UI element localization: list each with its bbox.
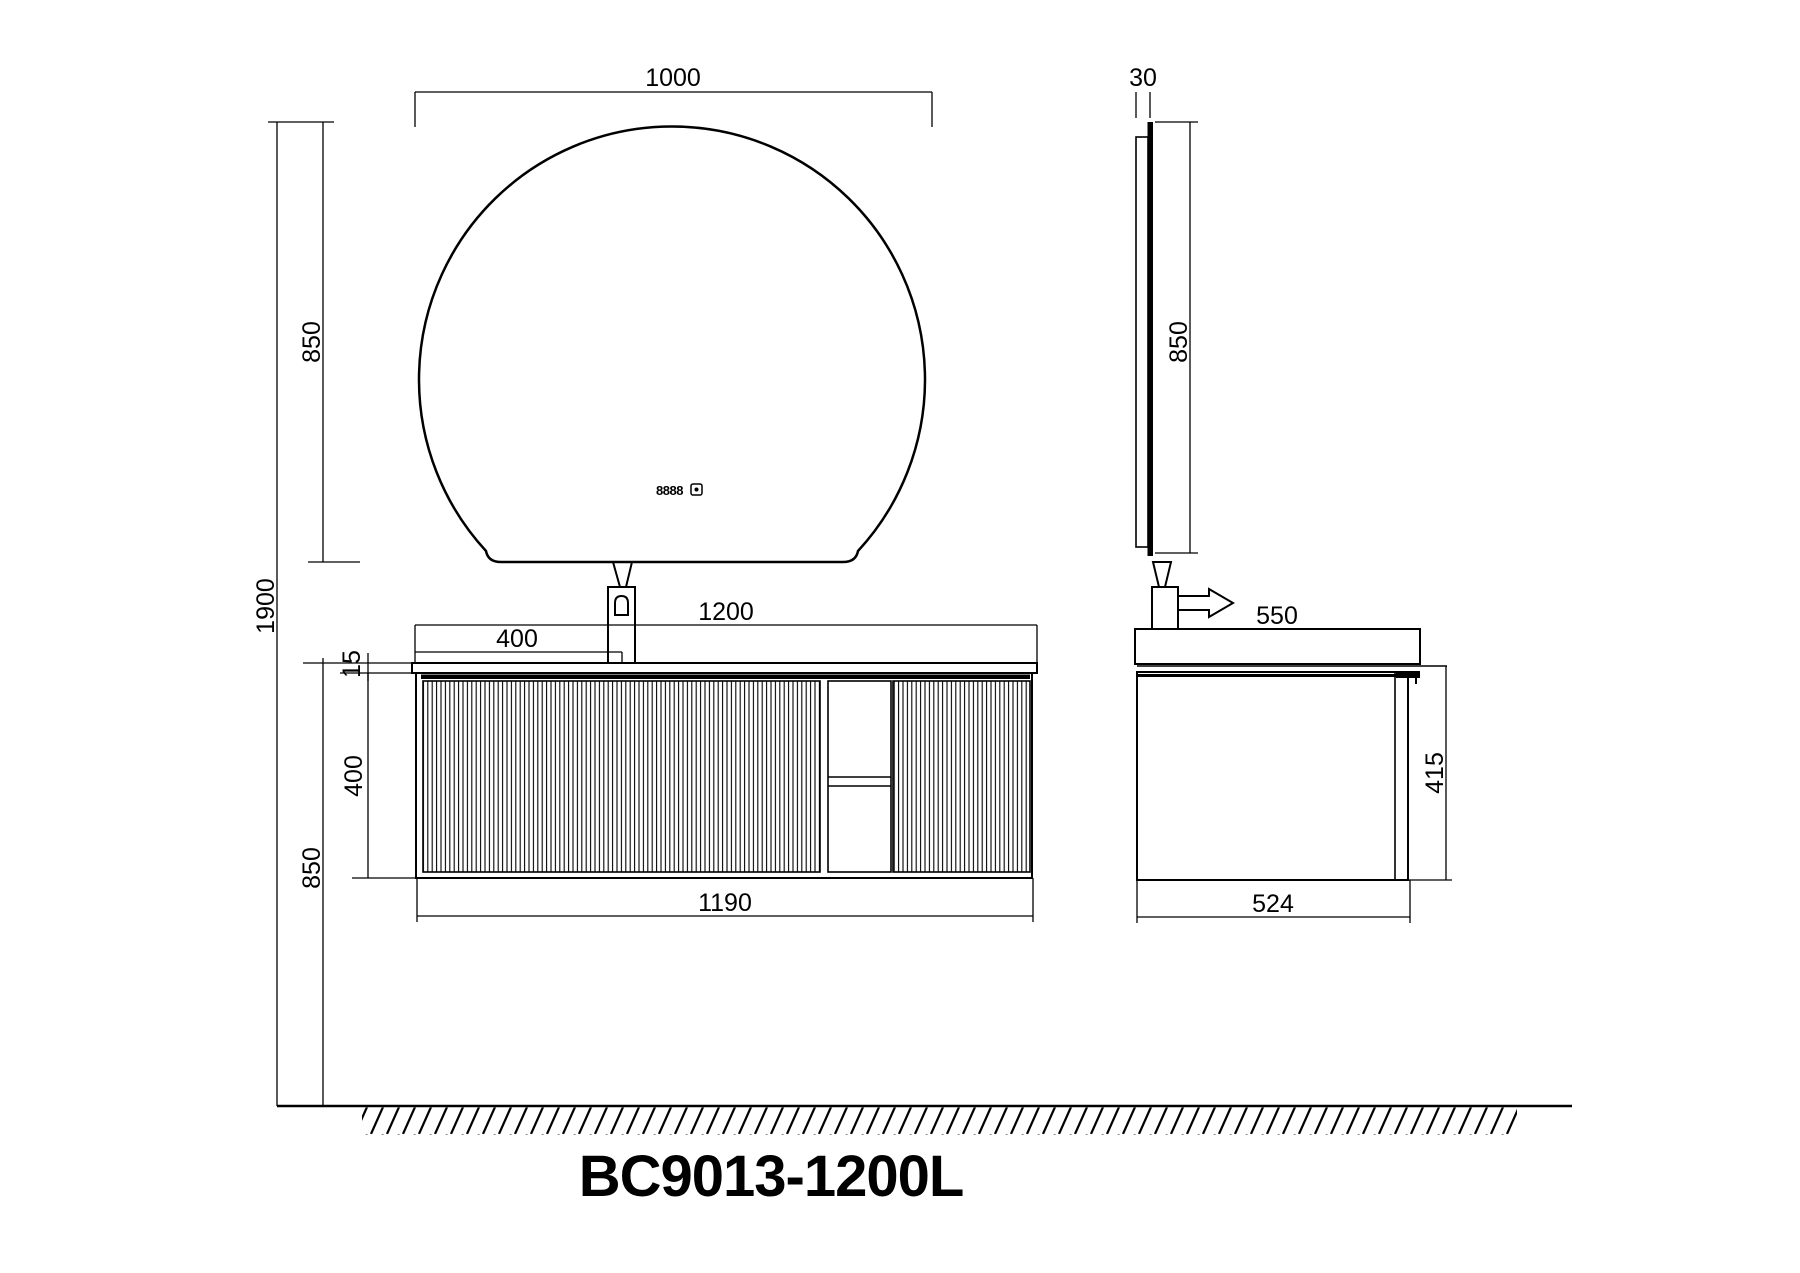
dim-faucet-offset-label: 400	[496, 625, 538, 653]
vanity-cabinet-side	[1137, 671, 1420, 880]
fluted-door-left	[423, 681, 820, 872]
fluted-panel-right	[893, 681, 1030, 872]
led-display-icon	[691, 484, 702, 495]
dim-mirror-thickness	[1136, 92, 1150, 118]
dim-mirror-width-label: 1000	[645, 64, 701, 92]
dim-floor-to-counter-label: 850	[298, 847, 326, 889]
dim-mirror-height-front-label: 850	[298, 321, 326, 363]
front-view: 8888 1000	[252, 64, 1037, 1106]
dim-mirror-thickness-label: 30	[1129, 64, 1157, 92]
side-view: 30 850 550	[1129, 64, 1452, 923]
drawer-stack	[828, 681, 891, 872]
faucet-spout-arrow-icon	[1178, 589, 1233, 617]
mirror-backing-panel	[1136, 137, 1148, 547]
dim-cabinet-depth-label: 524	[1252, 890, 1294, 918]
dim-counter-depth-label: 550	[1256, 602, 1298, 630]
cabinet-top-gap	[421, 675, 1030, 680]
mounting-bracket	[1396, 671, 1420, 678]
dim-mirror-height-side-label: 850	[1165, 321, 1193, 363]
dim-cabinet-width-label: 1190	[698, 889, 752, 917]
mirror-led-display: 8888	[656, 483, 683, 498]
dim-mirror-width	[415, 92, 932, 127]
countertop-front	[412, 663, 1037, 673]
dim-counter-thickness-label: 15	[338, 650, 366, 678]
dim-counter-width-label: 1200	[698, 598, 754, 626]
model-title: BC9013-1200L	[579, 1144, 964, 1209]
faucet-front	[608, 562, 635, 663]
countertop-side	[1135, 629, 1420, 664]
dim-faucet-offset	[415, 652, 622, 663]
technical-drawing: 8888 1000	[0, 0, 1800, 1273]
mirror-side	[1148, 122, 1154, 556]
dim-total-height-label: 1900	[252, 578, 280, 634]
dim-cabinet-height-side-label: 415	[1421, 752, 1449, 794]
drawing-canvas: 8888 1000	[0, 0, 1800, 1273]
dim-cabinet-height-front-label: 400	[340, 755, 368, 797]
floor-hatching	[362, 1108, 1517, 1135]
